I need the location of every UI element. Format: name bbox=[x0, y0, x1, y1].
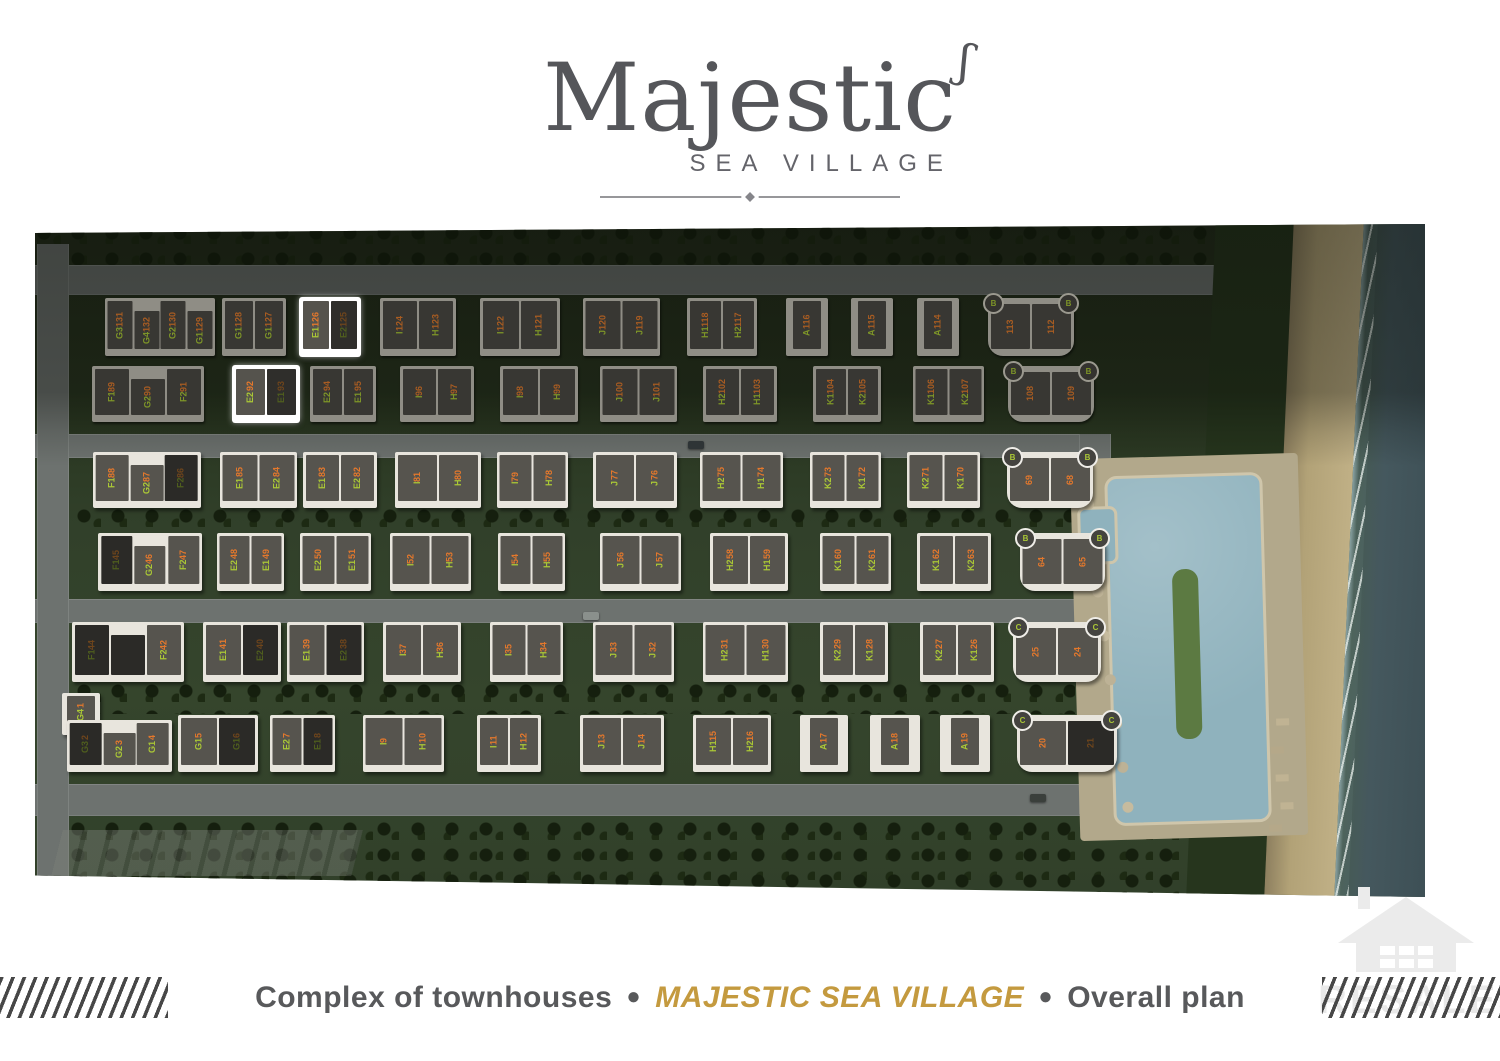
building: K229K128 bbox=[820, 622, 888, 682]
road-top bbox=[35, 265, 1285, 295]
unit-44: F144 bbox=[75, 625, 109, 675]
unit-88: F188 bbox=[96, 455, 129, 501]
unit-75: H275 bbox=[703, 455, 741, 501]
building: J13J14 bbox=[580, 715, 664, 772]
unit-8: E18 bbox=[304, 718, 333, 765]
unit-95: E195 bbox=[344, 369, 373, 415]
building: H115H216 bbox=[693, 715, 771, 772]
building: A115 bbox=[851, 298, 893, 356]
unit-40: E240 bbox=[243, 625, 278, 675]
unit-122: I122 bbox=[483, 301, 519, 349]
type-letter-B: B bbox=[1089, 528, 1110, 549]
unit-56: J56 bbox=[603, 536, 640, 584]
unit-28: K128 bbox=[855, 625, 885, 675]
hatch-bar-left bbox=[0, 977, 168, 1018]
type-letter-B: B bbox=[1058, 293, 1079, 314]
type-letter-C: C bbox=[1101, 710, 1122, 731]
building: G32G23G14 bbox=[67, 720, 172, 772]
building: G3131G4132G2130G1129 bbox=[105, 298, 215, 356]
road-bottom bbox=[35, 784, 1125, 816]
building: E250E151 bbox=[300, 533, 371, 591]
unit-42: F242 bbox=[147, 625, 181, 675]
unit-18: A18 bbox=[881, 718, 909, 765]
building: F145G246F247 bbox=[98, 533, 202, 591]
pool-island bbox=[1172, 569, 1203, 740]
unit-85: E185 bbox=[223, 455, 258, 501]
building: I52H53 bbox=[390, 533, 471, 591]
unit-73: K273 bbox=[813, 455, 845, 501]
building: G1128G1127 bbox=[222, 298, 286, 356]
building: K227K126 bbox=[920, 622, 994, 682]
unit-120: J120 bbox=[586, 301, 621, 349]
unit-unlabeled bbox=[111, 635, 145, 675]
swimming-pool bbox=[1104, 472, 1272, 826]
caption-text: Overall plan bbox=[1067, 981, 1245, 1014]
building: E183E282 bbox=[303, 452, 377, 508]
unit-84: E284 bbox=[260, 455, 295, 501]
unit-4: G14 bbox=[137, 723, 169, 765]
unit-107: K2107 bbox=[950, 369, 982, 415]
unit-3: G23 bbox=[104, 733, 136, 765]
type-letter-B: B bbox=[1002, 447, 1023, 468]
building: BB6465 bbox=[1020, 533, 1105, 591]
tree-band-top bbox=[35, 224, 1295, 266]
unit-2: G32 bbox=[70, 723, 102, 765]
diamond-icon bbox=[745, 192, 755, 202]
building: I124H123 bbox=[380, 298, 456, 356]
parking-stripes bbox=[51, 830, 362, 876]
unit-132: G4132 bbox=[135, 311, 160, 349]
unit-104: K1104 bbox=[816, 369, 846, 415]
unit-115: A115 bbox=[858, 301, 886, 349]
building: A116 bbox=[786, 298, 828, 356]
unit-55: H55 bbox=[533, 536, 563, 584]
caption-bar: Complex of townhouses●MAJESTIC SEA VILLA… bbox=[0, 981, 1500, 1015]
unit-96: I96 bbox=[403, 369, 436, 415]
unit-81: I81 bbox=[398, 455, 437, 501]
unit-131: G3131 bbox=[108, 301, 133, 349]
unit-12: H12 bbox=[510, 718, 538, 765]
unit-57: J57 bbox=[642, 536, 679, 584]
building: H1118H2117 bbox=[687, 298, 757, 356]
unit-118: H1118 bbox=[690, 301, 721, 349]
car-icon bbox=[688, 441, 704, 449]
unit-114: A114 bbox=[924, 301, 952, 349]
unit-82: E282 bbox=[341, 455, 374, 501]
unit-49: E149 bbox=[252, 536, 282, 584]
building: K162K263 bbox=[917, 533, 991, 591]
logo-subtitle: SEA VILLAGE bbox=[543, 150, 957, 178]
unit-105: K2105 bbox=[848, 369, 878, 415]
unit-52: I52 bbox=[393, 536, 430, 584]
unit-70: K170 bbox=[945, 455, 978, 501]
unit-103: H1103 bbox=[741, 369, 774, 415]
garden-band-lower bbox=[75, 682, 1075, 714]
logo-flourish-icon: ʃ bbox=[954, 37, 978, 85]
unit-19: A19 bbox=[951, 718, 979, 765]
building: F188G287F286 bbox=[93, 452, 201, 508]
unit-127: G1127 bbox=[255, 301, 283, 349]
unit-36: H36 bbox=[423, 625, 458, 675]
road-3 bbox=[35, 599, 1110, 623]
building: F189G290F291 bbox=[92, 366, 204, 422]
type-letter-B: B bbox=[983, 293, 1004, 314]
building: K273K172 bbox=[810, 452, 881, 508]
unit-46: G246 bbox=[134, 546, 165, 584]
logo-inner: Majesticʃ SEA VILLAGE bbox=[543, 52, 957, 178]
unit-125: E2125 bbox=[331, 301, 357, 349]
building: H231H130 bbox=[703, 622, 788, 682]
unit-7: E27 bbox=[273, 718, 302, 765]
page: Majesticʃ SEA VILLAGE bbox=[0, 0, 1500, 1061]
unit-89: F189 bbox=[95, 369, 129, 415]
building: J56J57 bbox=[600, 533, 681, 591]
unit-31: H231 bbox=[706, 625, 745, 675]
building: I96H97 bbox=[400, 366, 474, 422]
unit-13: J13 bbox=[583, 718, 621, 765]
car-icon bbox=[1030, 794, 1046, 802]
site-plan: G3131G4132G2130G1129G1128G1127E1126E2125… bbox=[35, 224, 1425, 897]
building: BB6968 bbox=[1007, 452, 1093, 508]
unit-119: J119 bbox=[623, 301, 658, 349]
building: H275H174 bbox=[700, 452, 783, 508]
unit-92: E292 bbox=[236, 369, 265, 415]
building: K1106K2107 bbox=[913, 366, 984, 422]
building: E294E195 bbox=[310, 366, 376, 422]
unit-126: E1126 bbox=[303, 301, 329, 349]
building: E27E18 bbox=[270, 715, 335, 772]
logo: Majesticʃ SEA VILLAGE bbox=[0, 52, 1500, 198]
car-icon bbox=[583, 612, 599, 620]
building: I122H121 bbox=[480, 298, 560, 356]
hatch-bar-right bbox=[1322, 977, 1500, 1018]
building: E141E240 bbox=[203, 622, 281, 682]
unit-6: G16 bbox=[219, 718, 255, 765]
building: I35H34 bbox=[490, 622, 563, 682]
unit-63: K263 bbox=[955, 536, 988, 584]
unit-91: F291 bbox=[167, 369, 201, 415]
building: I79H78 bbox=[497, 452, 568, 508]
type-letter-B: B bbox=[1003, 361, 1024, 382]
building: A114 bbox=[917, 298, 959, 356]
unit-60: K160 bbox=[823, 536, 855, 584]
unit-62: K162 bbox=[920, 536, 953, 584]
building: K160K261 bbox=[820, 533, 891, 591]
unit-45: F145 bbox=[101, 536, 132, 584]
building: BB113112 bbox=[988, 298, 1074, 356]
pool-deck bbox=[1070, 453, 1309, 841]
unit-38: E238 bbox=[327, 625, 362, 675]
unit-37: I37 bbox=[386, 625, 421, 675]
unit-124: I124 bbox=[383, 301, 417, 349]
house-icon bbox=[1336, 897, 1476, 943]
building: G15G16 bbox=[178, 715, 258, 772]
building: E292E193 bbox=[233, 366, 299, 422]
unit-15: H115 bbox=[696, 718, 731, 765]
unit-100: J100 bbox=[603, 369, 638, 415]
unit-59: H159 bbox=[750, 536, 785, 584]
building: E185E284 bbox=[220, 452, 297, 508]
building: A17 bbox=[800, 715, 848, 772]
building: BB108109 bbox=[1008, 366, 1094, 422]
bullet-icon: ● bbox=[1038, 983, 1053, 1010]
unit-130: G2130 bbox=[161, 301, 186, 349]
unit-33: J33 bbox=[596, 625, 633, 675]
unit-11: I11 bbox=[480, 718, 508, 765]
unit-90: G290 bbox=[131, 379, 165, 415]
unit-41: E141 bbox=[206, 625, 241, 675]
unit-101: J101 bbox=[640, 369, 675, 415]
type-letter-B: B bbox=[1015, 528, 1036, 549]
unit-72: K172 bbox=[847, 455, 879, 501]
unit-76: J76 bbox=[636, 455, 674, 501]
caption-text: Complex of townhouses bbox=[255, 981, 612, 1014]
unit-98: I98 bbox=[503, 369, 538, 415]
unit-14: J14 bbox=[623, 718, 661, 765]
unit-30: H130 bbox=[747, 625, 786, 675]
unit-102: H2102 bbox=[706, 369, 739, 415]
unit-10: H10 bbox=[405, 718, 442, 765]
unit-97: H97 bbox=[438, 369, 471, 415]
caption-brand: MAJESTIC SEA VILLAGE bbox=[655, 981, 1024, 1014]
unit-80: H80 bbox=[439, 455, 478, 501]
unit-61: K261 bbox=[857, 536, 889, 584]
building: J100J101 bbox=[600, 366, 677, 422]
building: J120J119 bbox=[583, 298, 660, 356]
unit-9: I9 bbox=[366, 718, 403, 765]
building: H258H159 bbox=[710, 533, 788, 591]
unit-129: G1129 bbox=[188, 311, 213, 349]
road-left bbox=[37, 244, 69, 882]
unit-106: K1106 bbox=[916, 369, 948, 415]
building: F144F242 bbox=[72, 622, 184, 682]
unit-5: G15 bbox=[181, 718, 217, 765]
unit-34: H34 bbox=[528, 625, 561, 675]
type-letter-C: C bbox=[1085, 617, 1106, 638]
unit-35: I35 bbox=[493, 625, 526, 675]
building: J33J32 bbox=[593, 622, 674, 682]
unit-121: H121 bbox=[521, 301, 557, 349]
unit-128: G1128 bbox=[225, 301, 253, 349]
building: E1126E2125 bbox=[300, 298, 360, 356]
unit-48: E248 bbox=[220, 536, 250, 584]
unit-26: K126 bbox=[958, 625, 991, 675]
logo-divider bbox=[600, 196, 900, 198]
unit-50: E250 bbox=[303, 536, 335, 584]
building: K1104K2105 bbox=[813, 366, 881, 422]
unit-74: H174 bbox=[743, 455, 781, 501]
unit-78: H78 bbox=[534, 455, 566, 501]
unit-86: F286 bbox=[165, 455, 198, 501]
building: E248E149 bbox=[217, 533, 284, 591]
unit-79: I79 bbox=[500, 455, 532, 501]
garden-band-mid bbox=[75, 507, 1075, 533]
unit-93: E193 bbox=[267, 369, 296, 415]
unit-53: H53 bbox=[432, 536, 469, 584]
unit-58: H258 bbox=[713, 536, 748, 584]
building: I11H12 bbox=[477, 715, 541, 772]
unit-87: G287 bbox=[131, 465, 164, 501]
building: E139E238 bbox=[287, 622, 364, 682]
building: I54H55 bbox=[498, 533, 565, 591]
type-letter-C: C bbox=[1008, 617, 1029, 638]
unit-94: E294 bbox=[313, 369, 342, 415]
unit-47: F247 bbox=[168, 536, 199, 584]
lounger-icons bbox=[1280, 802, 1293, 809]
type-letter-B: B bbox=[1078, 361, 1099, 382]
building: A18 bbox=[870, 715, 920, 772]
unit-117: H2117 bbox=[723, 301, 754, 349]
building: J77J76 bbox=[593, 452, 677, 508]
unit-71: K271 bbox=[910, 455, 943, 501]
bullet-icon: ● bbox=[626, 983, 641, 1010]
unit-99: H99 bbox=[540, 369, 575, 415]
unit-32: J32 bbox=[635, 625, 672, 675]
unit-29: K229 bbox=[823, 625, 853, 675]
building: K271K170 bbox=[907, 452, 980, 508]
building: H2102H1103 bbox=[703, 366, 777, 422]
building: A19 bbox=[940, 715, 990, 772]
logo-title: Majesticʃ bbox=[543, 52, 957, 146]
unit-77: J77 bbox=[596, 455, 634, 501]
building: CC2021 bbox=[1017, 715, 1117, 772]
unit-16: H216 bbox=[733, 718, 768, 765]
type-letter-C: C bbox=[1012, 710, 1033, 731]
unit-17: A17 bbox=[810, 718, 838, 765]
unit-83: E183 bbox=[306, 455, 339, 501]
unit-51: E151 bbox=[337, 536, 369, 584]
building: I9H10 bbox=[363, 715, 444, 772]
unit-27: K227 bbox=[923, 625, 956, 675]
unit-116: A116 bbox=[793, 301, 821, 349]
unit-123: H123 bbox=[419, 301, 453, 349]
building: CC2524 bbox=[1013, 622, 1101, 682]
unit-54: I54 bbox=[501, 536, 531, 584]
building: I81H80 bbox=[395, 452, 481, 508]
building: I37H36 bbox=[383, 622, 461, 682]
building: I98H99 bbox=[500, 366, 578, 422]
unit-39: E139 bbox=[290, 625, 325, 675]
type-letter-B: B bbox=[1077, 447, 1098, 468]
